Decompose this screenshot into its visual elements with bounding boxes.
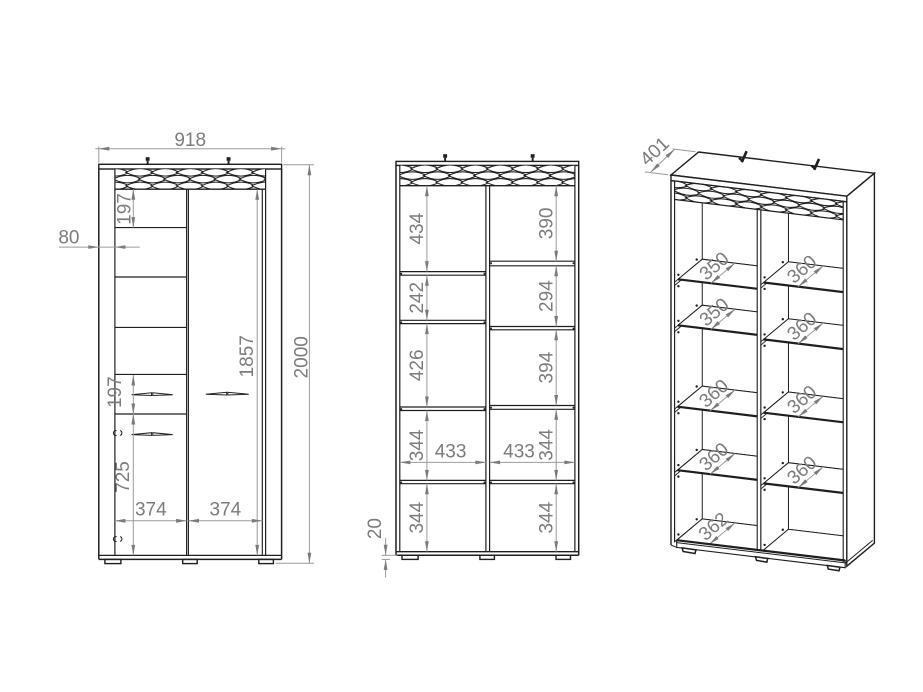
svg-text:197: 197 — [105, 376, 126, 408]
svg-text:20: 20 — [365, 518, 386, 539]
svg-text:374: 374 — [210, 500, 242, 521]
svg-text:390: 390 — [536, 208, 557, 240]
svg-text:434: 434 — [407, 212, 428, 244]
svg-text:394: 394 — [536, 351, 557, 383]
svg-text:80: 80 — [58, 227, 79, 248]
svg-text:344: 344 — [536, 501, 557, 533]
svg-text:344: 344 — [407, 429, 428, 461]
svg-text:433: 433 — [503, 441, 535, 462]
svg-text:344: 344 — [407, 501, 428, 533]
svg-text:294: 294 — [536, 280, 557, 312]
svg-text:1857: 1857 — [237, 335, 258, 377]
svg-text:426: 426 — [407, 349, 428, 381]
svg-text:197: 197 — [115, 193, 136, 225]
svg-text:242: 242 — [407, 282, 428, 314]
svg-text:374: 374 — [135, 500, 167, 521]
svg-text:344: 344 — [536, 429, 557, 461]
svg-text:725: 725 — [113, 461, 134, 493]
svg-text:2000: 2000 — [291, 336, 312, 378]
svg-text:433: 433 — [435, 441, 467, 462]
svg-text:918: 918 — [174, 130, 206, 151]
